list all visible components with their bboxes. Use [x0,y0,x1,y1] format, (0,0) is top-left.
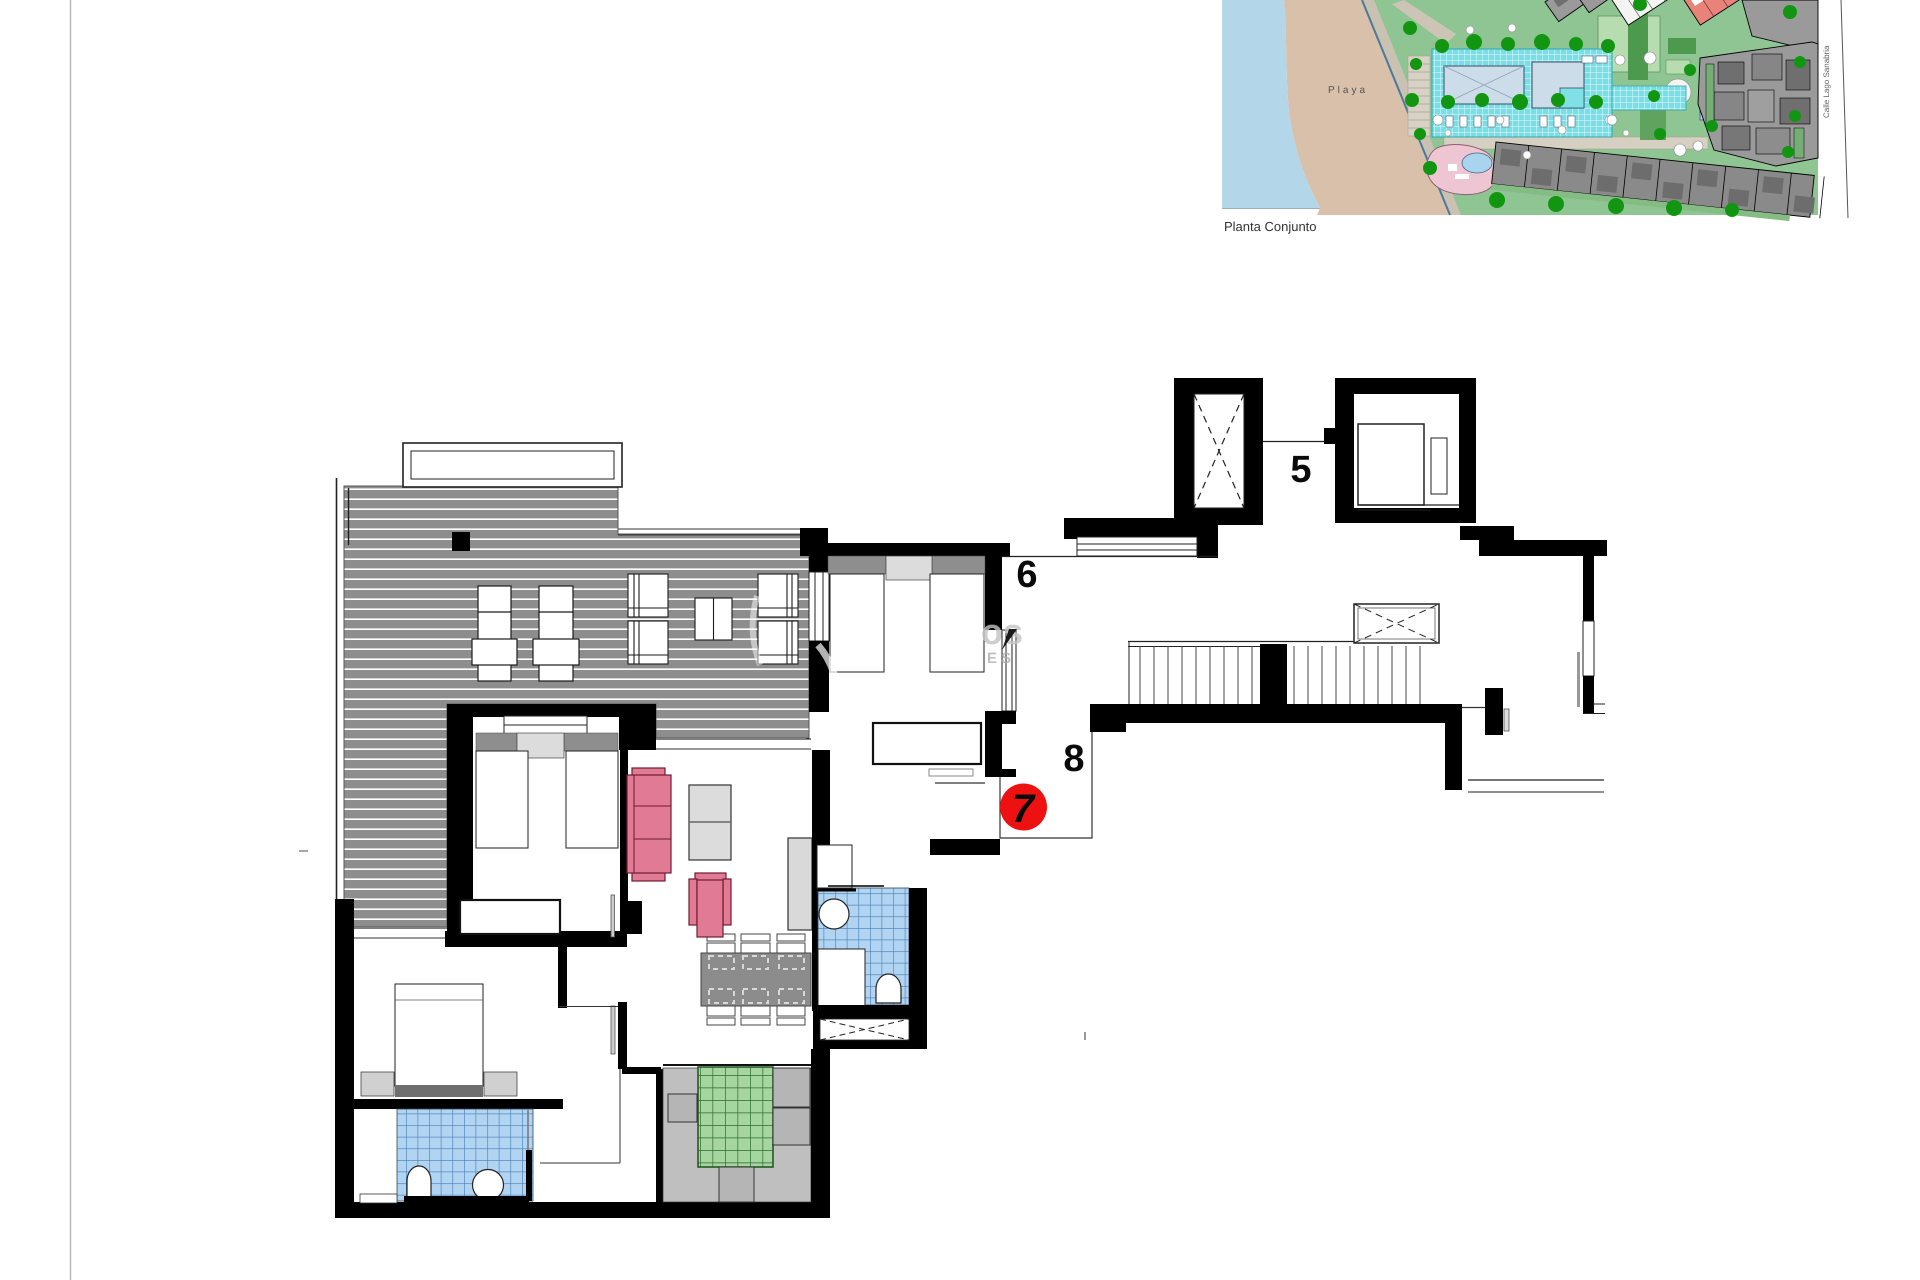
svg-text:E S: E S [987,650,1011,667]
svg-text:7: 7 [1012,787,1036,831]
svg-text:os: os [981,611,1023,652]
svg-text:Playa: Playa [1328,85,1368,96]
svg-text:Planta Conjunto: Planta Conjunto [1224,219,1317,234]
svg-text:Calle Lago Sanabria: Calle Lago Sanabria [1822,45,1831,118]
svg-text:5: 5 [1290,449,1311,491]
svg-text:6: 6 [1016,554,1037,596]
svg-text:8: 8 [1063,738,1084,780]
